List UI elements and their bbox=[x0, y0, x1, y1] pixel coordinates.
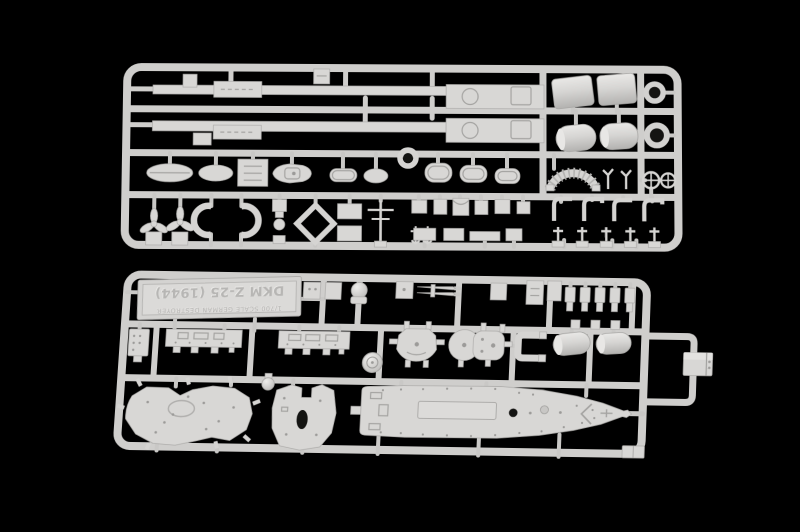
nameplate-title: DKM Z-25 (1944) bbox=[155, 282, 285, 300]
propeller-part bbox=[138, 206, 195, 245]
fitting-part bbox=[412, 198, 530, 241]
mast-part bbox=[367, 201, 393, 247]
fitting-part bbox=[337, 204, 361, 241]
diamond-frame-part bbox=[297, 205, 334, 242]
runner-segment bbox=[127, 109, 678, 112]
sprue-top-canvas bbox=[94, 47, 709, 265]
runner-segment bbox=[511, 330, 513, 384]
davit-part bbox=[603, 169, 631, 189]
clip-part bbox=[564, 287, 635, 330]
winch-part bbox=[272, 199, 286, 243]
sprue-bottom-canvas: DKM Z-25 (1944) DKM Z-25 (1944) 1/700 SC… bbox=[64, 256, 735, 486]
hull-side-strip-part bbox=[152, 117, 544, 147]
bridge-arch-part bbox=[546, 173, 600, 191]
runner-segment bbox=[153, 324, 157, 378]
sprue-top bbox=[94, 47, 709, 265]
capstan-part bbox=[351, 282, 368, 303]
gun-barrel-part bbox=[417, 284, 456, 297]
bridge-block-part bbox=[683, 352, 713, 375]
main-deck-part bbox=[349, 384, 632, 441]
bracket-part bbox=[517, 331, 546, 361]
deck-strip-part bbox=[165, 329, 242, 354]
hatch-plate-part bbox=[238, 159, 268, 186]
hatch-disc-part bbox=[362, 352, 383, 372]
superstructure-platform-part bbox=[114, 375, 261, 451]
life-ring-part bbox=[400, 150, 416, 166]
hull-side-strip-part bbox=[153, 81, 544, 109]
kit-nameplate: DKM Z-25 (1944) DKM Z-25 (1944) 1/700 SC… bbox=[137, 276, 301, 319]
photo-black-background: DKM Z-25 (1944) DKM Z-25 (1944) 1/700 SC… bbox=[0, 0, 800, 532]
runner-segment bbox=[249, 326, 252, 380]
runner-segment bbox=[321, 281, 324, 327]
runner-segment bbox=[641, 70, 642, 198]
bridge-deck-part bbox=[270, 384, 338, 451]
ring-frame-part bbox=[194, 206, 259, 235]
small-tab-part bbox=[622, 446, 645, 458]
searchlight-part bbox=[262, 373, 275, 390]
davit-arm-part bbox=[554, 199, 662, 222]
ship-wheel-part bbox=[643, 172, 675, 188]
deck-strip-part bbox=[278, 331, 350, 355]
sprue-bottom: DKM Z-25 (1944) DKM Z-25 (1944) 1/700 SC… bbox=[64, 256, 735, 486]
deckhouse-block-part bbox=[127, 329, 149, 362]
